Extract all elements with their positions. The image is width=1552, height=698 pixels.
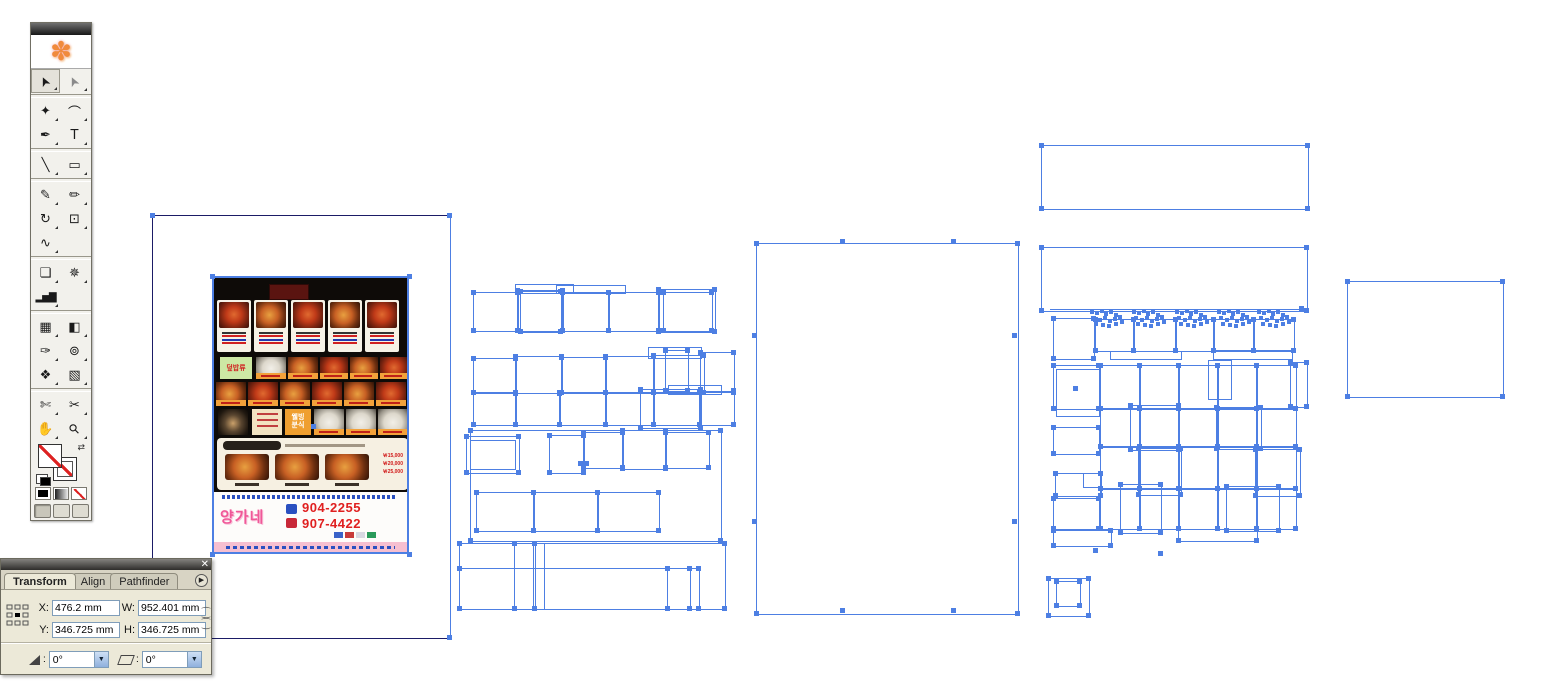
lasso-tool[interactable]: ⌒ <box>60 99 89 123</box>
food-cell <box>344 382 374 406</box>
anchor-handle[interactable] <box>698 387 703 392</box>
anchor-handle[interactable] <box>661 290 666 295</box>
scale-tool-icon: ⊡ <box>69 212 80 227</box>
scale-tool[interactable]: ⊡ <box>60 207 89 231</box>
anchor-handle[interactable] <box>1098 363 1103 368</box>
selected-object-rect[interactable] <box>562 292 610 332</box>
selected-object-rect[interactable] <box>1056 369 1100 417</box>
rectangle-tool[interactable]: ▭ <box>60 153 89 177</box>
x-input[interactable] <box>52 600 120 616</box>
anchor-handle[interactable] <box>474 490 479 495</box>
anchor-handle[interactable] <box>1254 538 1259 543</box>
anchor-handle[interactable] <box>603 390 608 395</box>
anchor-handle[interactable] <box>407 274 412 279</box>
shear-value: 0° <box>143 654 187 666</box>
anchor-handle[interactable] <box>656 490 661 495</box>
anchor-handle[interactable] <box>1086 613 1091 618</box>
anchor-handle[interactable] <box>1098 406 1103 411</box>
hand-tool[interactable]: ✋ <box>31 417 60 441</box>
tab-transform[interactable]: Transform <box>4 573 76 589</box>
anchor-handle[interactable] <box>1039 206 1044 211</box>
selected-object-rect[interactable] <box>1213 319 1255 352</box>
anchor-handle[interactable] <box>1305 206 1310 211</box>
selected-object-rect[interactable] <box>559 392 607 426</box>
selected-object-rect[interactable] <box>459 568 700 610</box>
anchor-handle[interactable] <box>1098 486 1103 491</box>
anchor-handle[interactable] <box>1137 363 1142 368</box>
anchor-handle[interactable] <box>1297 493 1302 498</box>
anchor-handle[interactable] <box>1158 530 1163 535</box>
gradient-tool[interactable]: ◧ <box>60 315 89 339</box>
anchor-handle[interactable] <box>840 608 845 613</box>
anchor-handle[interactable] <box>407 552 412 557</box>
anchor-handle[interactable] <box>531 490 536 495</box>
chevron-down-icon[interactable]: ▼ <box>94 652 108 667</box>
anchor-handle[interactable] <box>1304 308 1309 313</box>
anchor-handle[interactable] <box>1086 576 1091 581</box>
tab-align[interactable]: Align <box>72 573 114 589</box>
anchor-handle[interactable] <box>1051 543 1056 548</box>
selected-object-rect[interactable] <box>608 292 660 332</box>
anchor-handle[interactable] <box>1073 386 1078 391</box>
symbol-sprayer-tool-icon: ✵ <box>69 266 80 281</box>
anchor-handle[interactable] <box>1276 528 1281 533</box>
anchor-handle[interactable] <box>1012 519 1017 524</box>
free-transform-tool[interactable]: ❏ <box>31 261 60 285</box>
anchor-handle[interactable] <box>1046 613 1051 618</box>
selected-text-anchor-cluster[interactable] <box>1090 310 1094 314</box>
slice-tool[interactable]: ✄ <box>31 393 60 417</box>
none-button[interactable] <box>71 487 87 500</box>
y-input[interactable] <box>52 622 120 638</box>
selected-object-rect[interactable] <box>1208 360 1232 400</box>
anchor-handle[interactable] <box>1118 530 1123 535</box>
anchor-handle[interactable] <box>457 606 462 611</box>
panel-tabs: Transform Align Pathfinder ▶ <box>1 570 211 590</box>
anchor-handle[interactable] <box>687 606 692 611</box>
w-label: W: <box>119 602 135 614</box>
fullscreen-mode-button[interactable] <box>72 504 89 518</box>
anchor-handle[interactable] <box>1093 348 1098 353</box>
food-cell <box>376 382 406 406</box>
warp-tool[interactable]: ∿ <box>31 231 60 255</box>
anchor-handle[interactable] <box>1304 360 1309 365</box>
tools-palette-titlebar[interactable] <box>31 23 91 35</box>
anchor-handle[interactable] <box>1178 446 1183 451</box>
placed-menu-image[interactable]: 덮밥류웰빙분식￦15,000￦20,000￦25,000양가네904-22559… <box>212 276 409 554</box>
standard-screen-mode-button[interactable] <box>34 504 51 518</box>
anchor-handle[interactable] <box>1345 279 1350 284</box>
anchor-handle[interactable] <box>718 428 723 433</box>
anchor-handle[interactable] <box>1299 306 1304 311</box>
transform-panel[interactable]: ✕ Transform Align Pathfinder ▶ X: W: <box>0 558 212 675</box>
anchor-handle[interactable] <box>311 424 316 429</box>
anchor-handle[interactable] <box>1093 317 1098 322</box>
anchor-handle[interactable] <box>1051 356 1056 361</box>
anchor-handle[interactable] <box>210 552 215 557</box>
anchor-handle[interactable] <box>578 461 583 466</box>
toolbar-divider <box>31 94 91 98</box>
panel-menu-button[interactable]: ▶ <box>195 574 208 587</box>
food-photo <box>293 302 323 328</box>
transform-panel-titlebar[interactable]: ✕ <box>1 559 211 570</box>
anchor-handle[interactable] <box>1158 551 1163 556</box>
selected-text-anchor-cluster[interactable] <box>1175 310 1179 314</box>
anchor-handle[interactable] <box>1128 447 1133 452</box>
color-button[interactable] <box>35 487 51 500</box>
anchor-handle[interactable] <box>1305 143 1310 148</box>
anchor-handle[interactable] <box>1054 579 1059 584</box>
noodle-cell <box>346 409 376 435</box>
constrain-proportions-icon[interactable]: ⁐⁐ <box>202 608 209 630</box>
selected-text-anchor-cluster[interactable] <box>1257 310 1261 314</box>
line-segment-tool-icon: ╲ <box>42 158 50 173</box>
live-paint-selection-tool[interactable]: ▧ <box>60 363 89 387</box>
anchor-handle[interactable] <box>474 528 479 533</box>
selected-text-anchor-cluster[interactable] <box>1132 310 1136 314</box>
blend-tool[interactable]: ⊚ <box>60 339 89 363</box>
anchor-handle[interactable] <box>1258 405 1263 410</box>
selected-object-rect[interactable] <box>1178 488 1258 542</box>
anchor-handle[interactable] <box>1077 579 1082 584</box>
anchor-handle[interactable] <box>447 213 452 218</box>
tab-pathfinder[interactable]: Pathfinder <box>110 573 178 589</box>
gradient-tool-icon: ◧ <box>68 320 80 335</box>
swap-fill-stroke-icon[interactable]: ⇄ <box>77 443 85 453</box>
anchor-handle[interactable] <box>1136 446 1141 451</box>
selected-object-rect[interactable] <box>556 285 626 294</box>
selected-object-rect[interactable] <box>1053 530 1112 547</box>
selected-object-rect[interactable] <box>699 392 735 426</box>
phone-number-1: 904-2255 <box>302 500 361 515</box>
shear-angle-icon <box>117 655 135 665</box>
anchor-handle[interactable] <box>1046 576 1051 581</box>
selected-object-rect[interactable] <box>1041 247 1308 312</box>
selected-object-rect[interactable] <box>1095 319 1135 352</box>
anchor-handle[interactable] <box>951 608 956 613</box>
anchor-handle[interactable] <box>709 328 714 333</box>
anchor-handle[interactable] <box>513 354 518 359</box>
rotate-tool-icon: ↻ <box>40 212 51 227</box>
selected-object-rect[interactable] <box>1110 351 1182 360</box>
free-transform-tool-icon: ❏ <box>40 266 52 281</box>
anchor-handle[interactable] <box>709 290 714 295</box>
anchor-handle[interactable] <box>447 635 452 640</box>
anchor-handle[interactable] <box>468 428 473 433</box>
anchor-handle[interactable] <box>1297 447 1302 452</box>
live-paint-bucket-tool[interactable]: ❖ <box>31 363 60 387</box>
anchor-handle[interactable] <box>518 329 523 334</box>
anchor-handle[interactable] <box>1251 317 1256 322</box>
anchor-handle[interactable] <box>1015 241 1020 246</box>
anchor-handle[interactable] <box>1051 528 1056 533</box>
anchor-handle[interactable] <box>557 390 562 395</box>
color-mode-row <box>31 485 91 502</box>
anchor-handle[interactable] <box>1276 484 1281 489</box>
anchor-handle[interactable] <box>665 606 670 611</box>
anchor-handle[interactable] <box>210 274 215 279</box>
selected-object-rect[interactable] <box>1130 405 1180 451</box>
anchor-handle[interactable] <box>558 329 563 334</box>
anchor-handle[interactable] <box>696 566 701 571</box>
anchor-handle[interactable] <box>1176 486 1181 491</box>
anchor-handle[interactable] <box>595 490 600 495</box>
magic-wand-tool[interactable]: ✦ <box>31 99 60 123</box>
speed-badge <box>286 504 297 514</box>
anchor-handle[interactable] <box>1128 403 1133 408</box>
anchor-handle[interactable] <box>1288 360 1293 365</box>
selected-object-rect[interactable] <box>473 358 517 394</box>
anchor-handle[interactable] <box>687 566 692 571</box>
anchor-handle[interactable] <box>731 390 736 395</box>
anchor-handle[interactable] <box>1118 482 1123 487</box>
anchor-handle[interactable] <box>1176 363 1181 368</box>
illustrator-logo: ✽ <box>31 35 91 69</box>
selected-object-rect[interactable] <box>1178 446 1219 490</box>
mesh-tool-icon: ▦ <box>39 320 51 335</box>
anchor-handle[interactable] <box>722 541 727 546</box>
illustrator-canvas: 덮밥류웰빙분식￦15,000￦20,000￦25,000양가네904-22559… <box>0 0 1552 698</box>
selected-object-rect[interactable] <box>1120 484 1162 534</box>
anchor-handle[interactable] <box>1345 394 1350 399</box>
anchor-handle[interactable] <box>603 422 608 427</box>
anchor-handle[interactable] <box>1211 317 1216 322</box>
zoom-tool[interactable]: ⚲ <box>60 417 89 441</box>
anchor-handle[interactable] <box>1051 451 1056 456</box>
wellbeing-label: 웰빙 <box>292 414 305 422</box>
anchor-handle[interactable] <box>1098 444 1103 449</box>
anchor-handle[interactable] <box>1293 526 1298 531</box>
selected-object-rect[interactable] <box>640 389 702 429</box>
selected-object-rect[interactable] <box>1100 365 1141 410</box>
symbol-sprayer-tool[interactable]: ✵ <box>60 261 89 285</box>
anchor-handle[interactable] <box>1158 482 1163 487</box>
selected-object-rect[interactable] <box>1256 408 1297 448</box>
anchor-handle[interactable] <box>464 470 469 475</box>
anchor-handle[interactable] <box>1039 245 1044 250</box>
selected-object-rect[interactable] <box>1253 319 1295 352</box>
anchor-handle[interactable] <box>471 328 476 333</box>
anchor-handle[interactable] <box>1015 611 1020 616</box>
artboard-selected-edge <box>450 216 451 638</box>
food-cell <box>350 357 378 379</box>
line-segment-tool[interactable]: ╲ <box>31 153 60 177</box>
selected-object-rect[interactable] <box>533 492 599 532</box>
selected-object-rect[interactable] <box>597 492 660 532</box>
anchor-handle[interactable] <box>471 290 476 295</box>
anchor-handle[interactable] <box>606 328 611 333</box>
anchor-handle[interactable] <box>584 461 589 466</box>
anchor-handle[interactable] <box>951 239 956 244</box>
anchor-handle[interactable] <box>531 528 536 533</box>
h-input[interactable] <box>138 622 206 638</box>
selected-object-rect[interactable] <box>1347 281 1504 398</box>
anchor-handle[interactable] <box>1108 543 1113 548</box>
anchor-handle[interactable] <box>1093 548 1098 553</box>
selected-object-rect[interactable] <box>1041 145 1309 210</box>
pencil-tool[interactable]: ✏ <box>60 183 89 207</box>
fill-swatch[interactable] <box>38 444 62 468</box>
selected-object-rect[interactable] <box>1216 407 1262 450</box>
anchor-handle[interactable] <box>1288 404 1293 409</box>
anchor-handle[interactable] <box>1214 405 1219 410</box>
anchor-handle[interactable] <box>840 239 845 244</box>
type-tool[interactable]: T <box>60 123 89 147</box>
anchor-handle[interactable] <box>1053 471 1058 476</box>
selected-object-rect[interactable] <box>648 347 702 359</box>
slice-tool-icon: ✄ <box>40 398 51 413</box>
anchor-handle[interactable] <box>1012 333 1017 338</box>
selected-object-rect[interactable] <box>1053 427 1100 455</box>
selected-object-rect[interactable] <box>1178 408 1219 448</box>
selected-object-rect[interactable] <box>1139 365 1180 410</box>
anchor-handle[interactable] <box>731 422 736 427</box>
anchor-handle[interactable] <box>1051 316 1056 321</box>
magic-wand-tool-icon: ✦ <box>40 104 51 119</box>
rotate-tool[interactable]: ↻ <box>31 207 60 231</box>
anchor-handle[interactable] <box>1051 425 1056 430</box>
selected-object-rect[interactable] <box>1053 498 1100 530</box>
anchor-handle[interactable] <box>754 611 759 616</box>
chevron-down-icon[interactable]: ▼ <box>187 652 201 667</box>
mesh-tool[interactable]: ▦ <box>31 315 60 339</box>
anchor-handle[interactable] <box>1039 308 1044 313</box>
anchor-handle[interactable] <box>513 391 518 396</box>
selected-object-rect[interactable] <box>1290 362 1308 408</box>
anchor-handle[interactable] <box>1039 143 1044 148</box>
anchor-handle[interactable] <box>638 387 643 392</box>
eyedropper-tool[interactable]: ✑ <box>31 339 60 363</box>
anchor-handle[interactable] <box>752 519 757 524</box>
anchor-handle[interactable] <box>471 390 476 395</box>
selected-object-rect[interactable] <box>1213 350 1293 360</box>
reference-point-proxy[interactable] <box>6 604 30 626</box>
anchor-handle[interactable] <box>471 422 476 427</box>
anchor-handle[interactable] <box>752 333 757 338</box>
selected-object-rect[interactable] <box>1053 318 1095 360</box>
anchor-handle[interactable] <box>595 528 600 533</box>
anchor-handle[interactable] <box>1077 603 1082 608</box>
scissors-tool[interactable]: ✂ <box>60 393 89 417</box>
anchor-handle[interactable] <box>1173 317 1178 322</box>
pen-tool[interactable]: ✒ <box>31 123 60 147</box>
price-text-lines <box>367 330 397 350</box>
food-photo <box>256 302 286 328</box>
price-text-lines <box>293 330 323 350</box>
rotate-combo[interactable]: 0° ▼ <box>49 651 109 668</box>
food-photo <box>330 302 360 328</box>
anchor-handle[interactable] <box>1176 538 1181 543</box>
selected-object-rect[interactable] <box>663 292 713 332</box>
selected-text-anchor-cluster[interactable] <box>1217 310 1221 314</box>
anchor-handle[interactable] <box>1214 446 1219 451</box>
brand-name: 양가네 <box>220 506 264 527</box>
selected-object-rect[interactable] <box>561 357 607 394</box>
ad-section: 양가네904-2255907-4422 <box>214 492 407 552</box>
toolbar-divider <box>31 388 91 392</box>
label-cell <box>252 409 282 435</box>
close-icon[interactable]: ✕ <box>201 559 209 570</box>
anchor-handle[interactable] <box>754 241 759 246</box>
graph-tool[interactable]: ▂▅▇ <box>31 285 60 309</box>
anchor-handle[interactable] <box>656 528 661 533</box>
selected-object-rect[interactable] <box>473 392 517 426</box>
anchor-handle[interactable] <box>1500 279 1505 284</box>
anchor-handle[interactable] <box>661 328 666 333</box>
price-text-lines <box>256 330 286 350</box>
toolbar-divider <box>31 178 91 182</box>
tools-palette[interactable]: ✽ ➤➤✦⌒✒T╲▭✎✏↻⊡∿❏✵▂▅▇▦◧✑⊚❖▧✄✂✋⚲ ⇄ <box>30 22 92 521</box>
fill-stroke-control[interactable]: ⇄ <box>31 441 91 485</box>
x-label: X: <box>33 602 49 614</box>
anchor-handle[interactable] <box>1051 363 1056 368</box>
selected-object-rect[interactable] <box>756 243 1019 615</box>
anchor-handle[interactable] <box>1098 526 1103 531</box>
selected-object-rect[interactable] <box>1175 319 1215 352</box>
shear-combo[interactable]: 0° ▼ <box>142 651 202 668</box>
anchor-handle[interactable] <box>696 606 701 611</box>
default-fill-stroke-icon[interactable] <box>36 474 48 484</box>
price-text-lines <box>330 330 360 350</box>
anchor-handle[interactable] <box>1176 403 1181 408</box>
food-cell <box>248 382 278 406</box>
anchor-handle[interactable] <box>464 434 469 439</box>
anchor-handle[interactable] <box>1131 317 1136 322</box>
food-photo <box>367 302 397 328</box>
anchor-handle[interactable] <box>1291 317 1296 322</box>
transform-panel-body: X: W: Y: H: ⁐⁐ : 0° ▼ <box>1 590 211 674</box>
selected-object-rect[interactable] <box>473 292 519 332</box>
anchor-handle[interactable] <box>1054 603 1059 608</box>
y-label: Y: <box>33 624 49 636</box>
anchor-handle[interactable] <box>457 541 462 546</box>
gradient-button[interactable] <box>53 487 69 500</box>
anchor-handle[interactable] <box>512 541 517 546</box>
anchor-handle[interactable] <box>559 355 564 360</box>
selected-object-rect[interactable] <box>515 393 561 426</box>
selected-object-rect[interactable] <box>515 356 563 394</box>
selected-object-rect[interactable] <box>476 492 535 532</box>
anchor-handle[interactable] <box>457 566 462 571</box>
anchor-handle[interactable] <box>731 350 736 355</box>
anchor-handle[interactable] <box>150 213 155 218</box>
anchor-handle[interactable] <box>1304 245 1309 250</box>
anchor-handle[interactable] <box>471 356 476 361</box>
anchor-handle[interactable] <box>1091 356 1096 361</box>
selected-object-rect[interactable] <box>667 568 691 610</box>
anchor-handle[interactable] <box>603 354 608 359</box>
anchor-handle[interactable] <box>1051 496 1056 501</box>
anchor-handle[interactable] <box>513 422 518 427</box>
selected-object-rect[interactable] <box>520 291 562 333</box>
anchor-handle[interactable] <box>1304 404 1309 409</box>
selected-object-rect[interactable] <box>1133 319 1177 352</box>
pen-tool-icon: ✒ <box>40 128 51 143</box>
anchor-handle[interactable] <box>1253 447 1258 452</box>
anchor-handle[interactable] <box>665 566 670 571</box>
anchor-handle[interactable] <box>1254 486 1259 491</box>
anchor-handle[interactable] <box>1254 363 1259 368</box>
anchor-handle[interactable] <box>722 606 727 611</box>
anchor-handle[interactable] <box>1500 394 1505 399</box>
fullscreen-menubar-mode-button[interactable] <box>53 504 70 518</box>
w-input[interactable] <box>138 600 206 616</box>
anchor-handle[interactable] <box>557 422 562 427</box>
paintbrush-tool[interactable]: ✎ <box>31 183 60 207</box>
selection-tool[interactable]: ➤ <box>31 69 60 93</box>
toolbar-divider <box>31 256 91 260</box>
direct-selection-tool[interactable]: ➤ <box>60 69 89 93</box>
